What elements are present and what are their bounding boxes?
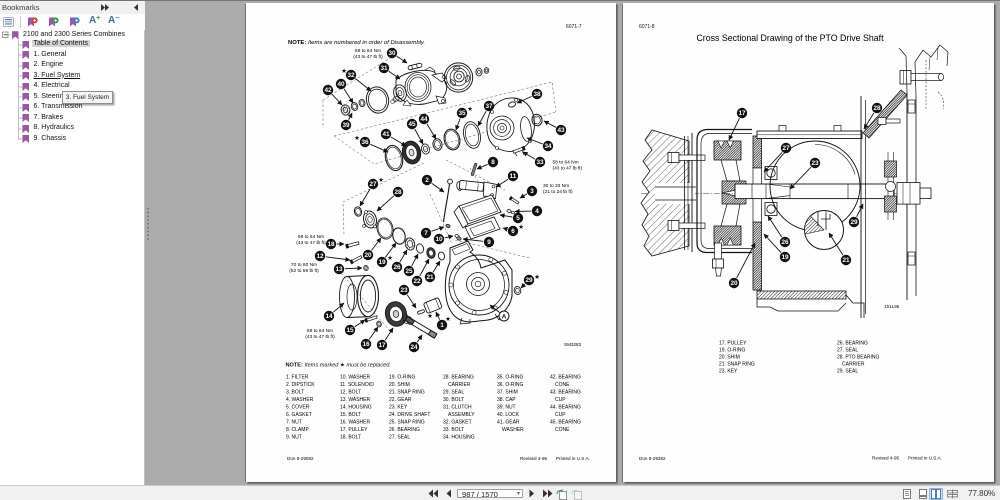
svg-text:A: A <box>502 313 507 320</box>
svg-text:1. FILTER: 1. FILTER <box>286 375 309 381</box>
svg-text:WASHER: WASHER <box>497 427 524 433</box>
svg-text:ASSEMBLY: ASSEMBLY <box>443 412 475 418</box>
svg-text:Don 8-29382: Don 8-29382 <box>639 456 666 461</box>
svg-text:45. BEARING: 45. BEARING <box>550 420 581 426</box>
svg-text:CONE: CONE <box>550 427 570 433</box>
svg-text:151L95: 151L95 <box>884 304 900 309</box>
svg-text:6071-7: 6071-7 <box>566 24 582 30</box>
svg-text:20. SHIM: 20. SHIM <box>719 355 740 361</box>
svg-text:NOTE: Items are numbered in or: NOTE: Items are numbered in order of Dis… <box>288 40 425 46</box>
svg-text:CARRIER: CARRIER <box>443 382 471 388</box>
svg-text:29. SEAL: 29. SEAL <box>837 369 858 375</box>
svg-text:30 to 33 Nm: 30 to 33 Nm <box>543 183 569 189</box>
svg-text:23. KEY: 23. KEY <box>719 369 738 375</box>
svg-text:10: 10 <box>435 236 443 243</box>
svg-text:★: ★ <box>534 273 540 281</box>
svg-text:2: 2 <box>425 177 429 184</box>
svg-text:21: 21 <box>842 257 850 264</box>
svg-text:21. SNAP RING: 21. SNAP RING <box>719 362 755 368</box>
svg-text:4. WASHER: 4. WASHER <box>286 397 314 403</box>
svg-text:CONE: CONE <box>550 382 570 388</box>
svg-text:41. GEAR: 41. GEAR <box>497 420 520 426</box>
svg-text:7: 7 <box>424 230 428 237</box>
svg-text:22: 22 <box>413 278 421 285</box>
svg-text:★: ★ <box>427 312 433 320</box>
svg-text:20: 20 <box>730 280 738 287</box>
svg-text:36. O-RING: 36. O-RING <box>497 382 524 388</box>
svg-text:9: 9 <box>487 239 491 246</box>
svg-text:5: 5 <box>516 215 520 222</box>
svg-text:39: 39 <box>342 122 350 129</box>
svg-text:38: 38 <box>533 91 541 98</box>
svg-text:32. GASKET: 32. GASKET <box>443 420 472 426</box>
svg-text:10. WASHER: 10. WASHER <box>340 375 370 381</box>
svg-text:34: 34 <box>544 143 552 150</box>
svg-text:36: 36 <box>361 139 369 146</box>
svg-text:23: 23 <box>400 287 408 294</box>
svg-text:17. PULLEY: 17. PULLEY <box>340 427 368 433</box>
svg-text:29: 29 <box>850 219 858 226</box>
svg-text:13. WASHER: 13. WASHER <box>340 397 370 403</box>
svg-text:38. CAP: 38. CAP <box>497 397 516 403</box>
svg-text:27: 27 <box>369 181 377 188</box>
svg-text:30. BOLT: 30. BOLT <box>443 397 464 403</box>
svg-text:27. SEAL: 27. SEAL <box>389 435 410 441</box>
svg-text:45: 45 <box>408 121 416 128</box>
svg-text:44: 44 <box>420 116 428 123</box>
svg-text:6: 6 <box>511 228 515 235</box>
svg-text:26: 26 <box>781 239 789 246</box>
svg-text:21. SNAP RING: 21. SNAP RING <box>389 390 425 396</box>
svg-text:2. DIPSTICK: 2. DIPSTICK <box>286 382 315 388</box>
svg-text:24: 24 <box>410 344 418 351</box>
svg-text:39. NUT: 39. NUT <box>497 405 516 411</box>
svg-text:★: ★ <box>341 67 347 75</box>
svg-text:26: 26 <box>393 264 401 271</box>
svg-text:23. KEY: 23. KEY <box>389 405 408 411</box>
svg-text:27. SEAL: 27. SEAL <box>837 348 858 354</box>
svg-text:27: 27 <box>782 145 790 152</box>
svg-text:18. BOLT: 18. BOLT <box>340 435 361 441</box>
svg-text:26. BEARING: 26. BEARING <box>389 427 420 433</box>
svg-text:40: 40 <box>337 81 345 88</box>
svg-text:CUP: CUP <box>550 412 566 418</box>
svg-text:20: 20 <box>364 252 372 259</box>
svg-text:43. BEARING: 43. BEARING <box>550 390 581 396</box>
svg-text:58 to 64 Nm: 58 to 64 Nm <box>298 234 324 240</box>
svg-text:29: 29 <box>525 277 533 284</box>
svg-text:31: 31 <box>380 65 388 72</box>
svg-text:43: 43 <box>557 127 565 134</box>
svg-text:CARRIER: CARRIER <box>837 362 865 368</box>
svg-text:16: 16 <box>362 341 370 348</box>
svg-text:★: ★ <box>378 176 384 184</box>
svg-text:19. O-RING: 19. O-RING <box>719 348 746 354</box>
svg-text:40. LOCK: 40. LOCK <box>497 412 520 418</box>
svg-text:★: ★ <box>387 254 393 262</box>
svg-text:42. BEARING: 42. BEARING <box>550 375 581 381</box>
svg-text:(43 to 47 lb ft): (43 to 47 lb ft) <box>296 240 326 246</box>
svg-text:6. GASKET: 6. GASKET <box>286 412 312 418</box>
svg-text:37. SHIM: 37. SHIM <box>497 390 518 396</box>
svg-text:35: 35 <box>458 110 466 117</box>
svg-text:5. COVER: 5. COVER <box>286 405 310 411</box>
svg-text:21: 21 <box>426 274 434 281</box>
svg-text:(43 to 47 lb ft): (43 to 47 lb ft) <box>353 54 383 60</box>
svg-text:14. HOUSING: 14. HOUSING <box>340 405 372 411</box>
svg-text:★: ★ <box>467 105 473 113</box>
svg-text:70 to 80 Nm: 70 to 80 Nm <box>291 262 317 268</box>
svg-text:(43 to 47 lb ft): (43 to 47 lb ft) <box>553 166 583 172</box>
svg-text:29. SEAL: 29. SEAL <box>443 390 464 396</box>
svg-text:35. O-RING: 35. O-RING <box>497 375 524 381</box>
svg-text:24. DRIVE SHAFT: 24. DRIVE SHAFT <box>389 412 430 418</box>
svg-text:58 to 64 Nm: 58 to 64 Nm <box>553 160 579 166</box>
svg-text:Printed in U.S.A.: Printed in U.S.A. <box>556 456 590 461</box>
svg-text:16. WASHER: 16. WASHER <box>340 420 370 426</box>
svg-text:58 to 64 Nm: 58 to 64 Nm <box>307 328 333 334</box>
svg-text:8. CLAMP: 8. CLAMP <box>286 427 309 433</box>
svg-text:17: 17 <box>738 110 746 117</box>
svg-text:(21 to 24 lb ft): (21 to 24 lb ft) <box>543 189 573 195</box>
svg-text:19: 19 <box>378 259 386 266</box>
svg-text:15: 15 <box>346 327 354 334</box>
svg-text:20. SHIM: 20. SHIM <box>389 382 410 388</box>
svg-text:NOTE: Items marked ★ must be r: NOTE: Items marked ★ must be replaced. <box>286 362 391 369</box>
svg-text:17: 17 <box>378 342 386 349</box>
svg-text:28. BEARING: 28. BEARING <box>443 375 474 381</box>
svg-text:30: 30 <box>388 50 396 57</box>
svg-text:CUP: CUP <box>550 397 566 403</box>
svg-text:Revised 4-95: Revised 4-95 <box>520 456 548 461</box>
svg-text:28. PTO BEARING: 28. PTO BEARING <box>837 355 880 361</box>
svg-text:32: 32 <box>347 72 355 79</box>
svg-text:★: ★ <box>518 223 524 231</box>
svg-text:41: 41 <box>382 131 390 138</box>
svg-text:34. HOUSING: 34. HOUSING <box>443 435 475 441</box>
svg-text:12. BOLT: 12. BOLT <box>340 390 361 396</box>
svg-text:19: 19 <box>781 254 789 261</box>
svg-text:9. NUT: 9. NUT <box>286 435 302 441</box>
svg-text:4: 4 <box>535 208 539 215</box>
svg-text:Don 8-29082: Don 8-29082 <box>287 456 314 461</box>
svg-text:11. SOLENOID: 11. SOLENOID <box>340 382 374 388</box>
svg-text:★: ★ <box>354 134 360 142</box>
svg-text:14: 14 <box>325 313 333 320</box>
svg-text:3. BOLT: 3. BOLT <box>286 390 304 396</box>
svg-text:58 to 64 Nm: 58 to 64 Nm <box>355 48 381 54</box>
svg-text:44. BEARING: 44. BEARING <box>550 405 581 411</box>
svg-text:28: 28 <box>394 189 402 196</box>
svg-text:11: 11 <box>510 173 517 180</box>
svg-text:33: 33 <box>536 159 544 166</box>
svg-text:26. BEARING: 26. BEARING <box>837 341 868 347</box>
svg-text:(43 to 47 lb ft): (43 to 47 lb ft) <box>305 334 335 340</box>
svg-text:19. O-RING: 19. O-RING <box>389 375 416 381</box>
svg-text:15. BOLT: 15. BOLT <box>340 412 361 418</box>
svg-text:28: 28 <box>873 105 881 112</box>
svg-text:6071-8: 6071-8 <box>639 24 655 30</box>
svg-text:8: 8 <box>491 159 495 166</box>
svg-text:31. CLUTCH: 31. CLUTCH <box>443 405 472 411</box>
svg-text:18: 18 <box>327 241 335 248</box>
svg-text:37: 37 <box>485 103 493 110</box>
svg-text:SM3283: SM3283 <box>564 342 582 347</box>
svg-text:Revised 4-95: Revised 4-95 <box>872 456 900 461</box>
svg-text:22. GEAR: 22. GEAR <box>389 397 412 403</box>
svg-text:7. NUT: 7. NUT <box>286 420 302 426</box>
svg-text:★: ★ <box>445 315 451 323</box>
svg-text:25. SNAP RING: 25. SNAP RING <box>389 420 425 426</box>
svg-text:25: 25 <box>405 268 413 275</box>
svg-text:(52 to 59 lb ft): (52 to 59 lb ft) <box>289 268 319 274</box>
svg-text:42: 42 <box>324 87 332 94</box>
svg-text:17. PULLEY: 17. PULLEY <box>719 341 747 347</box>
svg-text:Printed in U.S.A.: Printed in U.S.A. <box>908 456 942 461</box>
svg-text:12: 12 <box>316 253 324 260</box>
svg-text:13: 13 <box>335 266 343 273</box>
svg-text:3: 3 <box>530 188 534 195</box>
svg-text:23: 23 <box>811 160 819 167</box>
svg-text:1: 1 <box>440 322 444 329</box>
svg-text:33. BOLT: 33. BOLT <box>443 427 464 433</box>
svg-text:Cross Sectional Drawing of the: Cross Sectional Drawing of the PTO Drive… <box>696 33 884 43</box>
